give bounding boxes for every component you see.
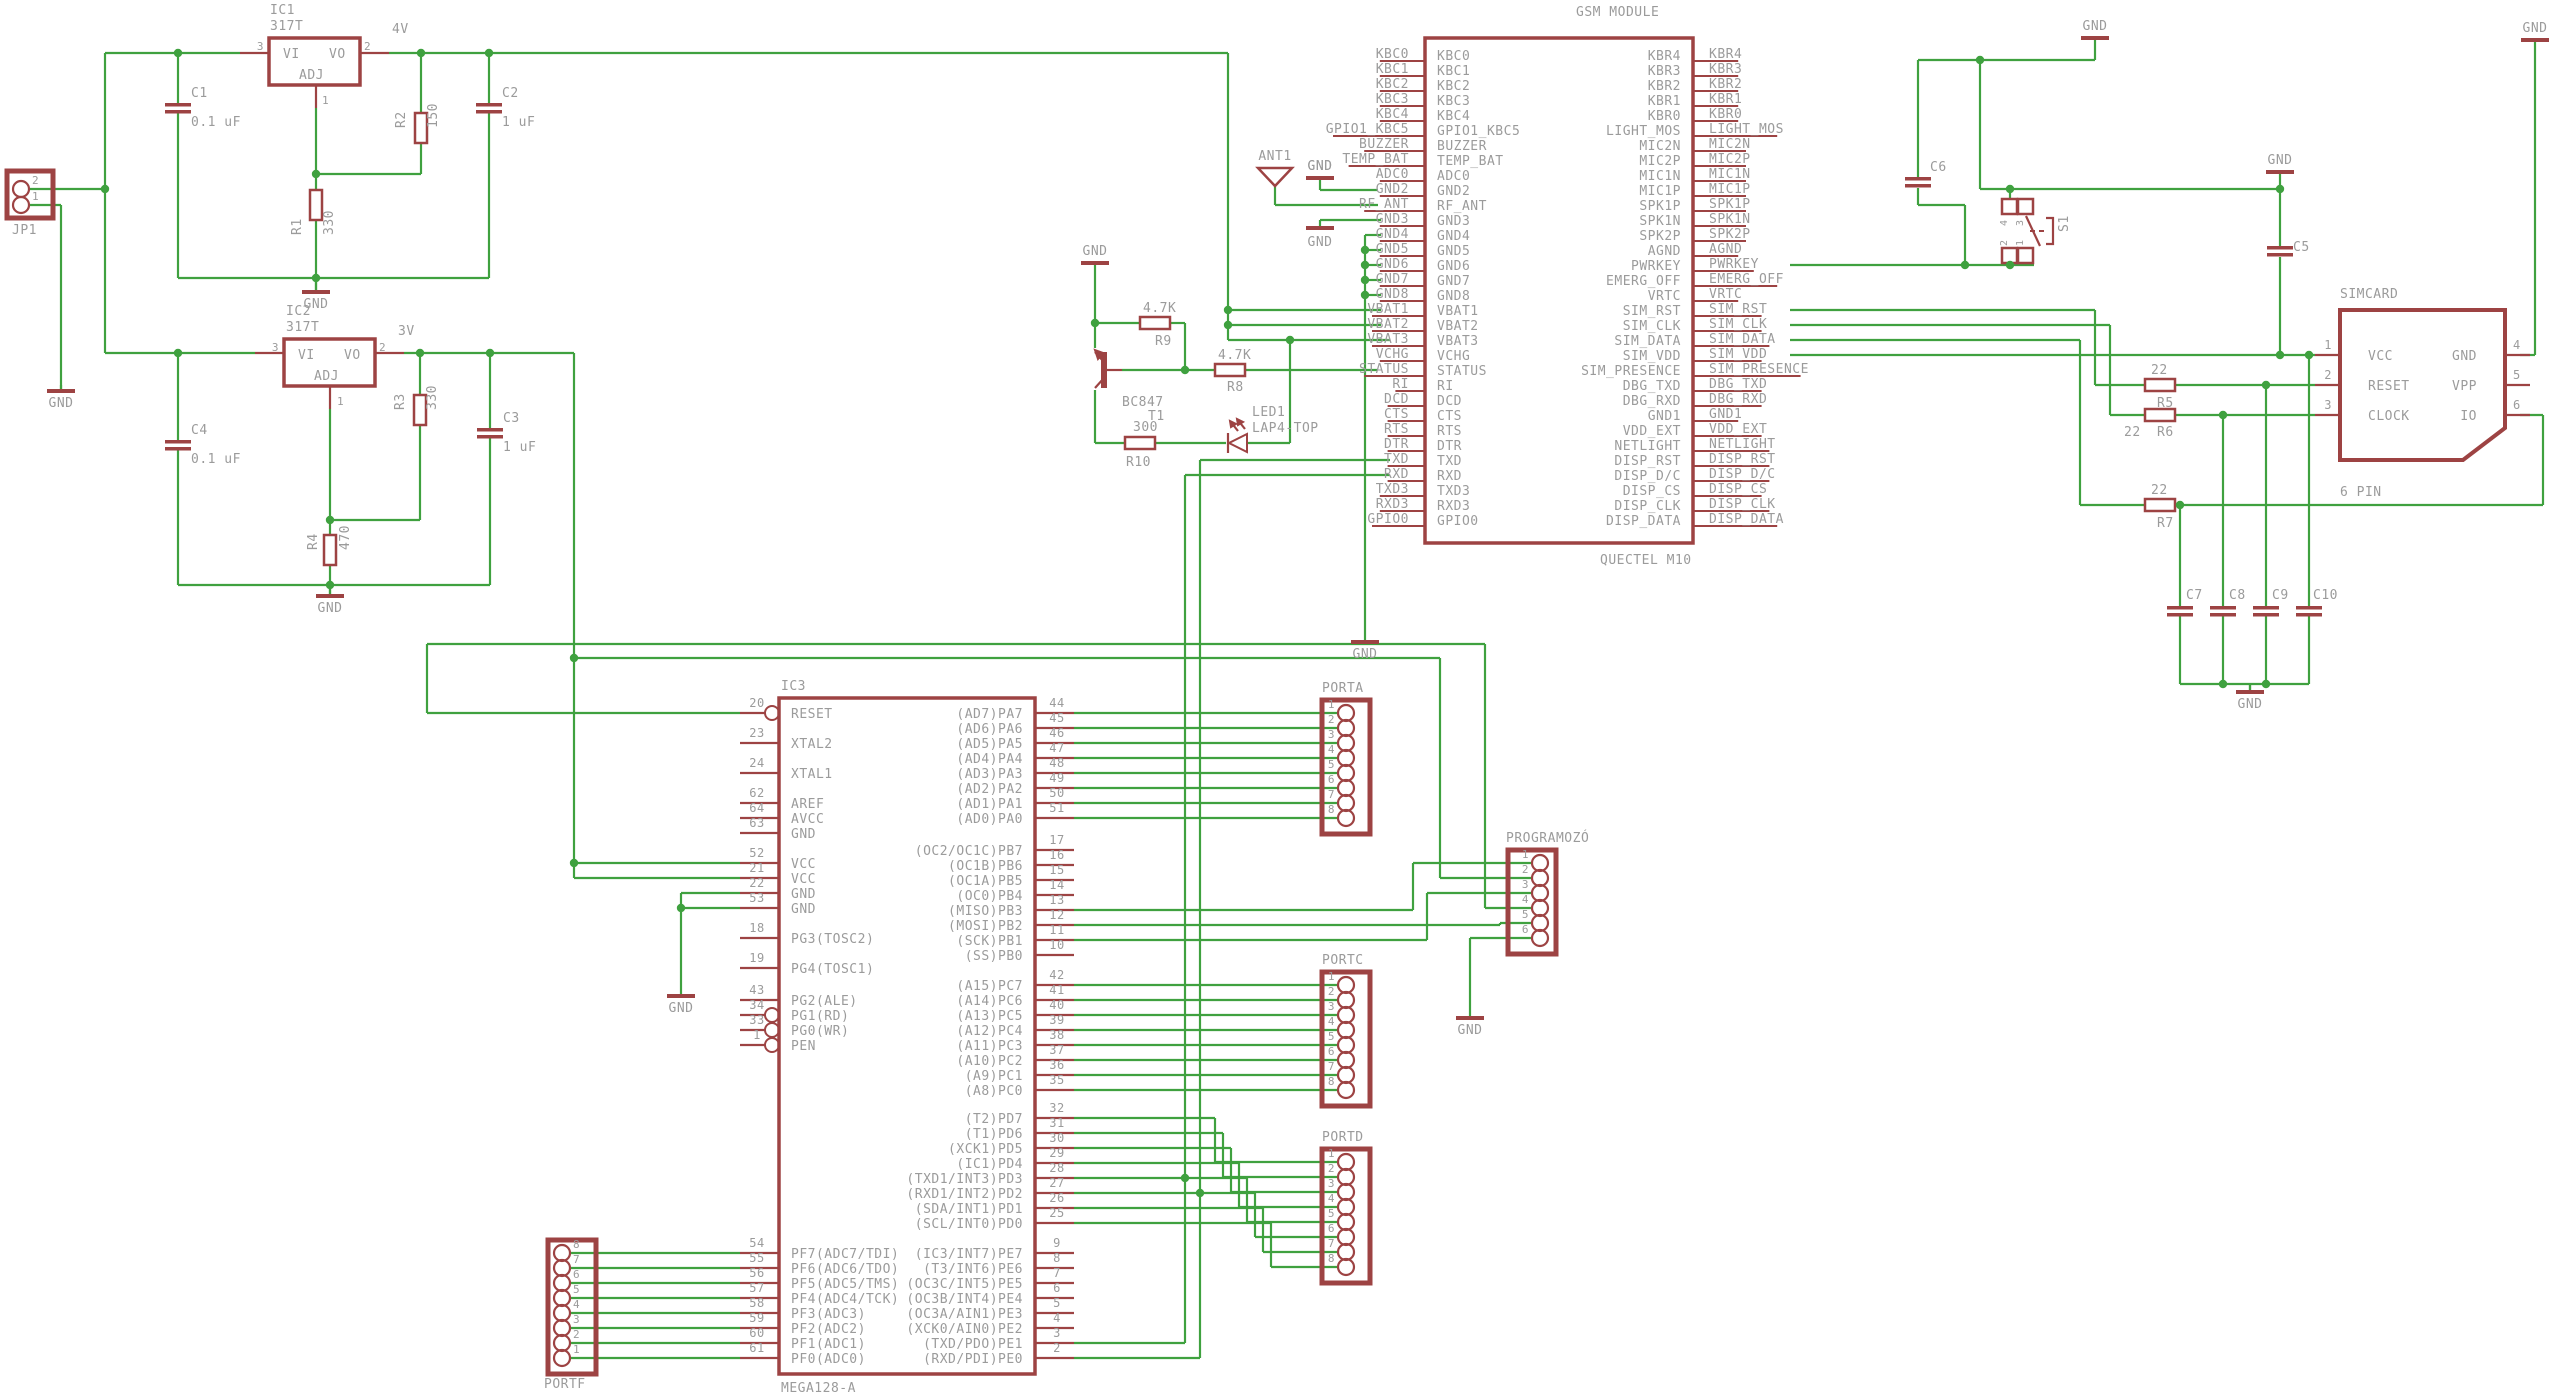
simcard-pin-name: VPP [2452, 379, 2477, 394]
label: R4 [306, 533, 321, 550]
gsm-pin-name: TXD [1437, 454, 1462, 469]
gsm-net-label: RTS [1384, 422, 1409, 437]
mcu-pin-name: (T2)PD7 [965, 1112, 1023, 1127]
gsm-pin-name: MIC1P [1639, 184, 1681, 199]
label: VI [283, 47, 300, 62]
pin-number: 1 [2324, 338, 2332, 352]
connector-pin [554, 1290, 570, 1306]
pin-number: 4 [1328, 1015, 1335, 1028]
gsm-pin-name: GND2 [1437, 184, 1470, 199]
pin-number: 59 [749, 1311, 764, 1325]
label: 0.1 uF [191, 115, 241, 130]
gsm-net-label: MIC1P [1709, 182, 1751, 197]
mcu-pin-name: (TXD1/INT3)PD3 [906, 1172, 1023, 1187]
pin-number: 7 [1053, 1266, 1061, 1280]
pin-number: 53 [749, 891, 764, 905]
pin-number: 28 [1049, 1161, 1064, 1175]
gsm-pin-name: MIC2P [1639, 154, 1681, 169]
mcu-pin-name: PF1(ADC1) [791, 1337, 866, 1352]
pin-number: 6 [1053, 1281, 1061, 1295]
junction-dot [1091, 319, 1099, 327]
mcu-value: MEGA128-A [781, 1381, 856, 1396]
gsm-pin-name: VRTC [1648, 289, 1681, 304]
mcu-pin-name: (A12)PC4 [956, 1024, 1023, 1039]
capacitor-plate [165, 447, 191, 451]
junction-dot [2305, 351, 2313, 359]
mcu-pin-name: PF6(ADC6/TDO) [791, 1262, 899, 1277]
pin-number: 4 [2513, 338, 2521, 352]
connector-pin [1338, 1007, 1354, 1023]
part-poly [1229, 434, 1247, 452]
label: R10 [1126, 455, 1151, 470]
mcu-pin-name: PF4(ADC4/TCK) [791, 1292, 899, 1307]
resistor-body [1125, 437, 1155, 449]
pin-number: 6 [1522, 923, 1529, 936]
gsm-pin-name: GND3 [1437, 214, 1470, 229]
connector-pin [554, 1305, 570, 1321]
junction-dot [416, 349, 424, 357]
label: 1 [2015, 239, 2026, 246]
gnd-symbol [47, 389, 75, 393]
junction-dot [1361, 291, 1369, 299]
pin-number: 18 [749, 921, 764, 935]
pin-number: 12 [1049, 908, 1064, 922]
gsm-net-label: GPIO1_KBC5 [1326, 122, 1409, 137]
gnd-label: GND [2268, 153, 2293, 168]
pin-number: 60 [749, 1326, 764, 1340]
connector-pin [1338, 1229, 1354, 1245]
mcu-pin-name: (AD6)PA6 [956, 722, 1023, 737]
mcu-pin-name: (IC1)PD4 [956, 1157, 1023, 1172]
switch-contact [2018, 199, 2033, 214]
gsm-net-label: AGND [1709, 242, 1742, 257]
junction-dot [1361, 276, 1369, 284]
label: 150 [426, 103, 441, 128]
label: S1 [2057, 215, 2072, 232]
pin-number: 48 [1049, 756, 1064, 770]
capacitor-plate [477, 428, 503, 432]
gsm-pin-name: RTS [1437, 424, 1462, 439]
capacitor-plate [2267, 253, 2293, 257]
pin-number: 7 [573, 1253, 580, 1266]
gsm-pin-name: DISP_RST [1614, 454, 1681, 469]
junction-dot [326, 581, 334, 589]
mcu-pin-name: PG4(TOSC1) [791, 962, 874, 977]
mcu-pin-name: (AD1)PA1 [956, 797, 1023, 812]
gsm-net-label: GND6 [1376, 257, 1409, 272]
pin-number: 4 [573, 1298, 580, 1311]
label: ADJ [299, 68, 324, 83]
pin-number: 6 [573, 1268, 580, 1281]
pin-number: 27 [1049, 1176, 1064, 1190]
gsm-net-label: DTR [1384, 437, 1409, 452]
pin-number: 8 [1328, 1252, 1335, 1265]
pin-number: 2 [1328, 985, 1335, 998]
pin-number: 17 [1049, 833, 1064, 847]
pin-number: 1 [753, 1028, 761, 1042]
gsm-pin-name: RXD3 [1437, 499, 1470, 514]
label: 2 [1999, 239, 2010, 246]
gnd-label: GND [318, 601, 343, 616]
gnd-symbol [2521, 38, 2549, 42]
gsm-pin-name: SIM_VDD [1623, 349, 1681, 364]
gsm-net-label: GPIO0 [1367, 512, 1409, 527]
pin-number: 29 [1049, 1146, 1064, 1160]
mcu-pin-name: (SS)PB0 [965, 949, 1023, 964]
pin-number: 43 [749, 983, 764, 997]
connector-pin [1338, 1214, 1354, 1230]
pin-number: 4 [1328, 1192, 1335, 1205]
capacitor-plate [477, 435, 503, 439]
pin-number: 3 [2324, 398, 2332, 412]
gsm-pin-name: TEMP_BAT [1437, 154, 1504, 169]
gsm-pin-name: PWRKEY [1631, 259, 1681, 274]
connector-title: PORTC [1322, 953, 1364, 968]
gsm-net-label: TXD3 [1376, 482, 1409, 497]
label: R6 [2157, 425, 2174, 440]
gsm-net-label: SPK2P [1709, 227, 1751, 242]
gsm-net-label: TEMP_BAT [1342, 152, 1409, 167]
connector-pin [554, 1275, 570, 1291]
gsm-net-label: RF_ANT [1359, 197, 1409, 212]
pin-number: 16 [1049, 848, 1064, 862]
junction-dot [1286, 336, 1294, 344]
mcu-pin-name: (MISO)PB3 [948, 904, 1023, 919]
label: 2 [379, 341, 386, 354]
gsm-pin-name: SPK2P [1639, 229, 1681, 244]
pin-number: 20 [749, 696, 764, 710]
pin-number: 8 [573, 1238, 580, 1251]
label: IC2 [286, 304, 311, 319]
junction-dot [2176, 501, 2184, 509]
gsm-pin-name: ADC0 [1437, 169, 1470, 184]
label: C6 [1930, 160, 1947, 175]
gsm-net-label: DBG_RXD [1709, 392, 1767, 407]
pin-number: 30 [1049, 1131, 1064, 1145]
connector-pin [1532, 885, 1548, 901]
junction-dot [677, 904, 685, 912]
schematic-page: GSM MODULEQUECTEL M10KBC0KBC0KBC1KBC1KBC… [0, 0, 2556, 1398]
junction-dot [1224, 306, 1232, 314]
gsm-net-label: KBC3 [1376, 92, 1409, 107]
pin-number: 1 [1328, 698, 1335, 711]
gsm-pin-name: EMERG_OFF [1606, 274, 1681, 289]
junction-dot [1224, 321, 1232, 329]
pin-number: 24 [749, 756, 764, 770]
gsm-net-label: KBR2 [1709, 77, 1742, 92]
junction-dot [2219, 680, 2227, 688]
pin-number: 5 [1328, 1030, 1335, 1043]
gnd-symbol [2236, 690, 2264, 694]
connector-pin [1532, 930, 1548, 946]
label: 0.1 uF [191, 452, 241, 467]
mcu-pin-name: PG2(ALE) [791, 994, 858, 1009]
pin-number: 58 [749, 1296, 764, 1310]
pin-number: 8 [1328, 803, 1335, 816]
pin-number: 3 [1328, 728, 1335, 741]
gsm-pin-name: GND5 [1437, 244, 1470, 259]
gsm-pin-name: KBC1 [1437, 64, 1470, 79]
label: C5 [2293, 240, 2310, 255]
pin-number: 46 [1049, 726, 1064, 740]
gsm-pin-name: SPK1P [1639, 199, 1681, 214]
mcu-pin-name: (OC3C/INT5)PE5 [906, 1277, 1023, 1292]
connector-pin [1532, 915, 1548, 931]
connector-title: PORTF [544, 1377, 586, 1392]
gsm-subtitle: QUECTEL M10 [1600, 553, 1692, 568]
connector-pin [1338, 1067, 1354, 1083]
capacitor-plate [2167, 606, 2193, 610]
gsm-pin-name: SPK1N [1639, 214, 1681, 229]
connector-pin [1338, 1154, 1354, 1170]
pin-number: 31 [1049, 1116, 1064, 1130]
connector-pin [554, 1260, 570, 1276]
gsm-net-label: MIC2N [1709, 137, 1751, 152]
pin-number: 2 [32, 174, 39, 187]
capacitor-plate [2296, 606, 2322, 610]
connector-pin [1338, 810, 1354, 826]
pin-number: 3 [1328, 1000, 1335, 1013]
gsm-pin-name: DISP_D/C [1614, 469, 1681, 484]
mcu-pin-name: PF3(ADC3) [791, 1307, 866, 1322]
label: R9 [1155, 334, 1172, 349]
junction-dot [326, 516, 334, 524]
mcu-pin-name: AREF [791, 797, 824, 812]
mcu-pin-name: XTAL1 [791, 767, 833, 782]
pin-number: 5 [2513, 368, 2521, 382]
resistor-body [1215, 364, 1245, 376]
label: 22 [2124, 425, 2141, 440]
label: R1 [290, 218, 305, 235]
pin-number: 2 [573, 1328, 580, 1341]
gsm-net-label: GND5 [1376, 242, 1409, 257]
gsm-pin-name: GND1 [1648, 409, 1681, 424]
junction-dot [2276, 185, 2284, 193]
connector-pin [13, 197, 29, 213]
pin-number: 54 [749, 1236, 764, 1250]
gsm-net-label: KBC0 [1376, 47, 1409, 62]
label: VO [329, 47, 346, 62]
mcu-pin-name: (AD0)PA0 [956, 812, 1023, 827]
resistor-body [310, 190, 322, 220]
mcu-pin-name: (A8)PC0 [965, 1084, 1023, 1099]
gsm-pin-name: KBR4 [1648, 49, 1681, 64]
gsm-net-label: SIM_DATA [1709, 332, 1776, 347]
junction-dot [486, 349, 494, 357]
connector-pin [1338, 1184, 1354, 1200]
pin-number: 6 [1328, 1222, 1335, 1235]
connector-title: PORTA [1322, 681, 1364, 696]
gsm-net-label: DISP_CLK [1709, 497, 1776, 512]
capacitor-plate [1905, 177, 1931, 181]
gsm-net-label: KBR1 [1709, 92, 1742, 107]
gnd-symbol [1306, 226, 1334, 230]
pin-number: 1 [32, 190, 39, 203]
gsm-net-label: VDD_EXT [1709, 422, 1767, 437]
label: C7 [2186, 588, 2203, 603]
junction-dot [2006, 261, 2014, 269]
gsm-pin-name: KBR3 [1648, 64, 1681, 79]
connector-pin [1338, 795, 1354, 811]
gsm-net-label: DISP_DATA [1709, 512, 1784, 527]
gsm-net-label: NETLIGHT [1709, 437, 1776, 452]
mcu-pin-name: (AD2)PA2 [956, 782, 1023, 797]
gsm-pin-name: STATUS [1437, 364, 1487, 379]
gsm-net-label: GND3 [1376, 212, 1409, 227]
pin-number: 1 [1522, 848, 1529, 861]
pin-number: 2 [1522, 863, 1529, 876]
gsm-pin-name: DTR [1437, 439, 1462, 454]
gsm-net-label: SIM_PRESENCE [1709, 362, 1809, 377]
junction-dot [1196, 1189, 1204, 1197]
mcu-pin-name: GND [791, 827, 816, 842]
gsm-net-label: SIM_VDD [1709, 347, 1767, 362]
pin-number: 10 [1049, 938, 1064, 952]
mcu-pin-name: (T3/INT6)PE6 [923, 1262, 1023, 1277]
label: ADJ [314, 369, 339, 384]
pin-number: 40 [1049, 998, 1064, 1012]
pin-number: 33 [749, 1013, 764, 1027]
gsm-pin-name: VBAT3 [1437, 334, 1479, 349]
gsm-net-label: VBAT2 [1367, 317, 1409, 332]
gnd-symbol [1351, 640, 1379, 644]
label: 1 [322, 94, 329, 107]
invert-bubble [765, 1008, 779, 1022]
gsm-pin-name: GND4 [1437, 229, 1470, 244]
mcu-pin-name: (SCK)PB1 [956, 934, 1023, 949]
pin-number: 2 [2324, 368, 2332, 382]
capacitor-plate [165, 440, 191, 444]
antenna-icon [1258, 168, 1292, 186]
pin-number: 8 [1328, 1075, 1335, 1088]
pin-number: 36 [1049, 1058, 1064, 1072]
pin-number: 37 [1049, 1043, 1064, 1057]
pin-number: 25 [1049, 1206, 1064, 1220]
pin-number: 63 [749, 816, 764, 830]
mcu-pin-name: (A10)PC2 [956, 1054, 1023, 1069]
gnd-symbol [316, 594, 344, 598]
gsm-pin-name: VCHG [1437, 349, 1470, 364]
mcu-pin-name: PEN [791, 1039, 816, 1054]
gsm-net-label: DISP_RST [1709, 452, 1776, 467]
mcu-ref: IC3 [781, 679, 806, 694]
pin-number: 5 [1522, 908, 1529, 921]
pin-number: 39 [1049, 1013, 1064, 1027]
pin-number: 56 [749, 1266, 764, 1280]
gnd-symbol [1306, 176, 1334, 180]
label: LED1 [1252, 405, 1285, 420]
gsm-pin-name: KBR0 [1648, 109, 1681, 124]
gsm-net-label: GND8 [1376, 287, 1409, 302]
junction-dot [2219, 411, 2227, 419]
pin-number: 13 [1049, 893, 1064, 907]
connector-pin [1338, 720, 1354, 736]
gsm-pin-name: SIM_RST [1623, 304, 1681, 319]
pin-number: 5 [1328, 1207, 1335, 1220]
resistor-body [1140, 317, 1170, 329]
junction-dot [1976, 56, 1984, 64]
invert-bubble [765, 1038, 779, 1052]
label: 3 [272, 341, 279, 354]
pin-number: 35 [1049, 1073, 1064, 1087]
gsm-pin-name: KBC2 [1437, 79, 1470, 94]
pin-number: 42 [1049, 968, 1064, 982]
pin-number: 62 [749, 786, 764, 800]
pin-number: 44 [1049, 696, 1064, 710]
connector-pin [1338, 992, 1354, 1008]
gsm-net-label: MIC1N [1709, 167, 1751, 182]
pin-number: 8 [1053, 1251, 1061, 1265]
pin-number: 57 [749, 1281, 764, 1295]
gsm-pin-name: RXD [1437, 469, 1462, 484]
pin-number: 47 [1049, 741, 1064, 755]
capacitor-plate [2267, 246, 2293, 250]
pin-number: 32 [1049, 1101, 1064, 1115]
antenna-label: ANT1 [1258, 149, 1291, 164]
label: C10 [2313, 588, 2338, 603]
simcard-pin-name: IO [2460, 409, 2477, 424]
label: C8 [2229, 588, 2246, 603]
gsm-pin-name: BUZZER [1437, 139, 1487, 154]
connector-pin [1532, 855, 1548, 871]
pin-number: 55 [749, 1251, 764, 1265]
capacitor-plate [2167, 613, 2193, 617]
gnd-label: GND [1458, 1023, 1483, 1038]
mcu-pin-name: (OC2/OC1C)PB7 [915, 844, 1023, 859]
pin-number: 6 [2513, 398, 2521, 412]
junction-dot [485, 49, 493, 57]
gsm-pin-name: GND7 [1437, 274, 1470, 289]
connector-pin [1338, 1169, 1354, 1185]
mcu-pin-name: GND [791, 902, 816, 917]
label: C3 [503, 411, 520, 426]
pin-number: 21 [749, 861, 764, 875]
gsm-net-label: GND7 [1376, 272, 1409, 287]
connector-pin [1338, 1052, 1354, 1068]
junction-dot [2276, 351, 2284, 359]
gsm-net-label: RXD [1384, 467, 1409, 482]
gsm-net-label: KBR4 [1709, 47, 1742, 62]
label: BC847 [1122, 395, 1164, 410]
pin-number: 3 [1328, 1177, 1335, 1190]
label: C9 [2272, 588, 2289, 603]
mcu-pin-name: (SCL/INT0)PD0 [915, 1217, 1023, 1232]
gnd-symbol [1456, 1016, 1484, 1020]
capacitor-plate [476, 110, 502, 114]
label: VI [298, 348, 315, 363]
mcu-pin-name: VCC [791, 857, 816, 872]
pin-number: 11 [1049, 923, 1064, 937]
gsm-net-label: ADC0 [1376, 167, 1409, 182]
label: 3V [398, 324, 415, 339]
pin-number: 5 [1328, 758, 1335, 771]
pin-number: 15 [1049, 863, 1064, 877]
connector-pin [1338, 750, 1354, 766]
mcu-pin-name: (A13)PC5 [956, 1009, 1023, 1024]
pin-number: 6 [1328, 1045, 1335, 1058]
pin-number: 51 [1049, 801, 1064, 815]
simcard-pin-name: CLOCK [2368, 409, 2410, 424]
capacitor-plate [2253, 613, 2279, 617]
label: LAP4-TOP [1252, 421, 1319, 436]
pin-number: 4 [1522, 893, 1529, 906]
resistor-body [2145, 499, 2175, 511]
gsm-pin-name: DISP_CS [1623, 484, 1681, 499]
gsm-pin-name: KBC3 [1437, 94, 1470, 109]
connector-pin [554, 1350, 570, 1366]
gsm-pin-name: DCD [1437, 394, 1462, 409]
pin-number: 34 [749, 998, 764, 1012]
